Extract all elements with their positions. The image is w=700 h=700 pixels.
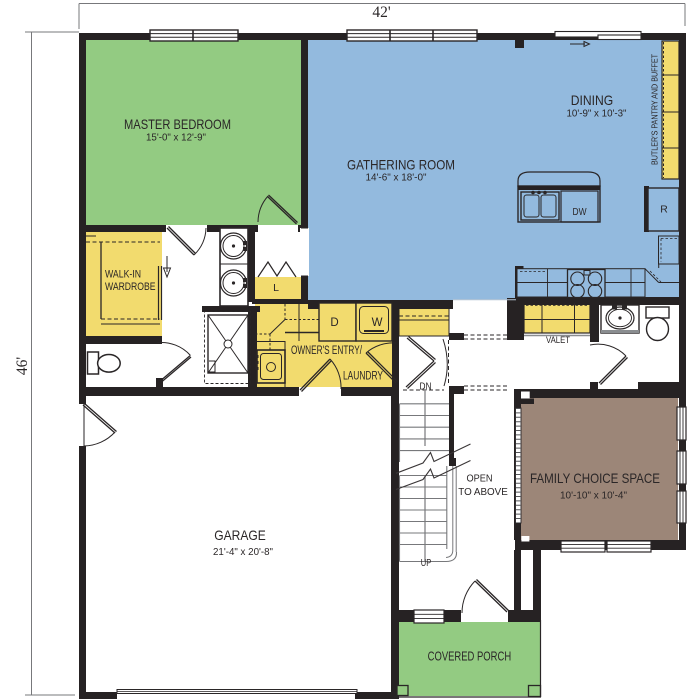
svg-text:10'-9" x 10'-3": 10'-9" x 10'-3" (567, 107, 627, 119)
svg-text:GATHERING ROOM: GATHERING ROOM (347, 157, 455, 173)
svg-text:DN: DN (420, 382, 432, 393)
svg-text:FAMILY CHOICE SPACE: FAMILY CHOICE SPACE (530, 470, 660, 486)
svg-text:WALK-IN: WALK-IN (105, 269, 141, 281)
svg-text:D: D (330, 317, 338, 329)
svg-text:WARDROBE: WARDROBE (105, 281, 156, 293)
svg-text:VALET: VALET (546, 335, 571, 345)
svg-text:DINING: DINING (571, 92, 614, 108)
svg-text:15'-0" x 12'-9": 15'-0" x 12'-9" (146, 132, 206, 144)
svg-text:DW: DW (573, 207, 587, 218)
svg-text:10'-10" x 10'-4": 10'-10" x 10'-4" (560, 490, 627, 502)
svg-text:W: W (372, 317, 383, 329)
svg-text:UP: UP (421, 558, 432, 569)
svg-text:MASTER BEDROOM: MASTER BEDROOM (124, 116, 231, 132)
svg-text:OWNER'S ENTRY/: OWNER'S ENTRY/ (291, 345, 363, 357)
svg-text:46': 46' (14, 357, 31, 376)
svg-text:GARAGE: GARAGE (214, 527, 266, 543)
svg-text:BUTLER'S PANTRY AND BUFFET: BUTLER'S PANTRY AND BUFFET (651, 54, 660, 165)
svg-text:TO ABOVE: TO ABOVE (458, 487, 508, 498)
svg-text:LAUNDRY: LAUNDRY (343, 370, 383, 382)
svg-text:COVERED PORCH: COVERED PORCH (428, 649, 512, 663)
svg-text:42': 42' (372, 4, 391, 21)
svg-text:21'-4" x 20'-8": 21'-4" x 20'-8" (213, 546, 273, 558)
svg-text:R: R (660, 205, 668, 216)
svg-text:OPEN: OPEN (467, 474, 493, 485)
svg-text:14'-6" x 18'-0": 14'-6" x 18'-0" (366, 171, 427, 183)
svg-text:L: L (273, 282, 279, 294)
